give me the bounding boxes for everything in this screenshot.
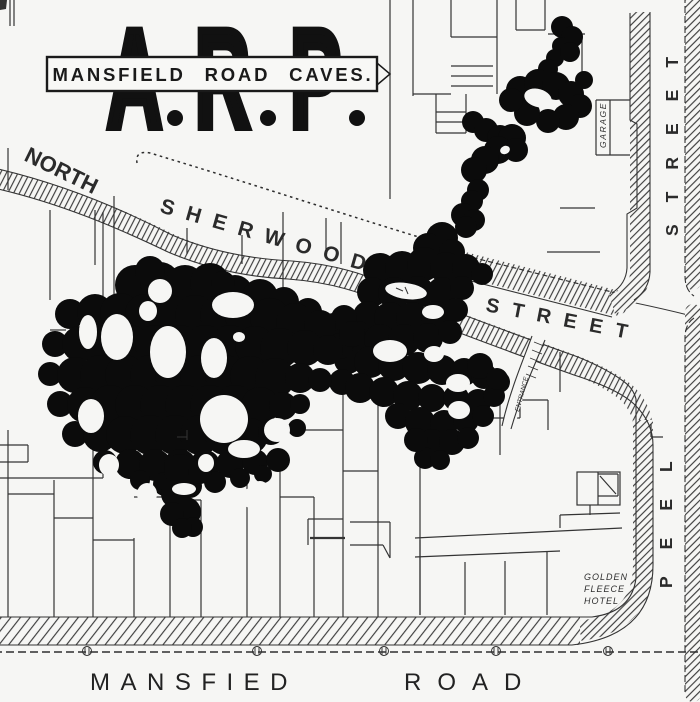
svg-text:HOTEL: HOTEL (584, 596, 619, 606)
svg-text:GARAGE: GARAGE (598, 102, 608, 148)
svg-text:PEEL: PEEL (656, 434, 676, 588)
svg-text:GOLDEN: GOLDEN (584, 572, 628, 582)
svg-text:STREET: STREET (662, 35, 682, 236)
svg-text:ROAD: ROAD (404, 669, 537, 696)
svg-text:MANSFIELD ROAD CAVES.: MANSFIELD ROAD CAVES. (53, 64, 374, 85)
svg-text:MANSFIED: MANSFIED (90, 669, 298, 696)
svg-text:FLEECE: FLEECE (584, 584, 625, 594)
